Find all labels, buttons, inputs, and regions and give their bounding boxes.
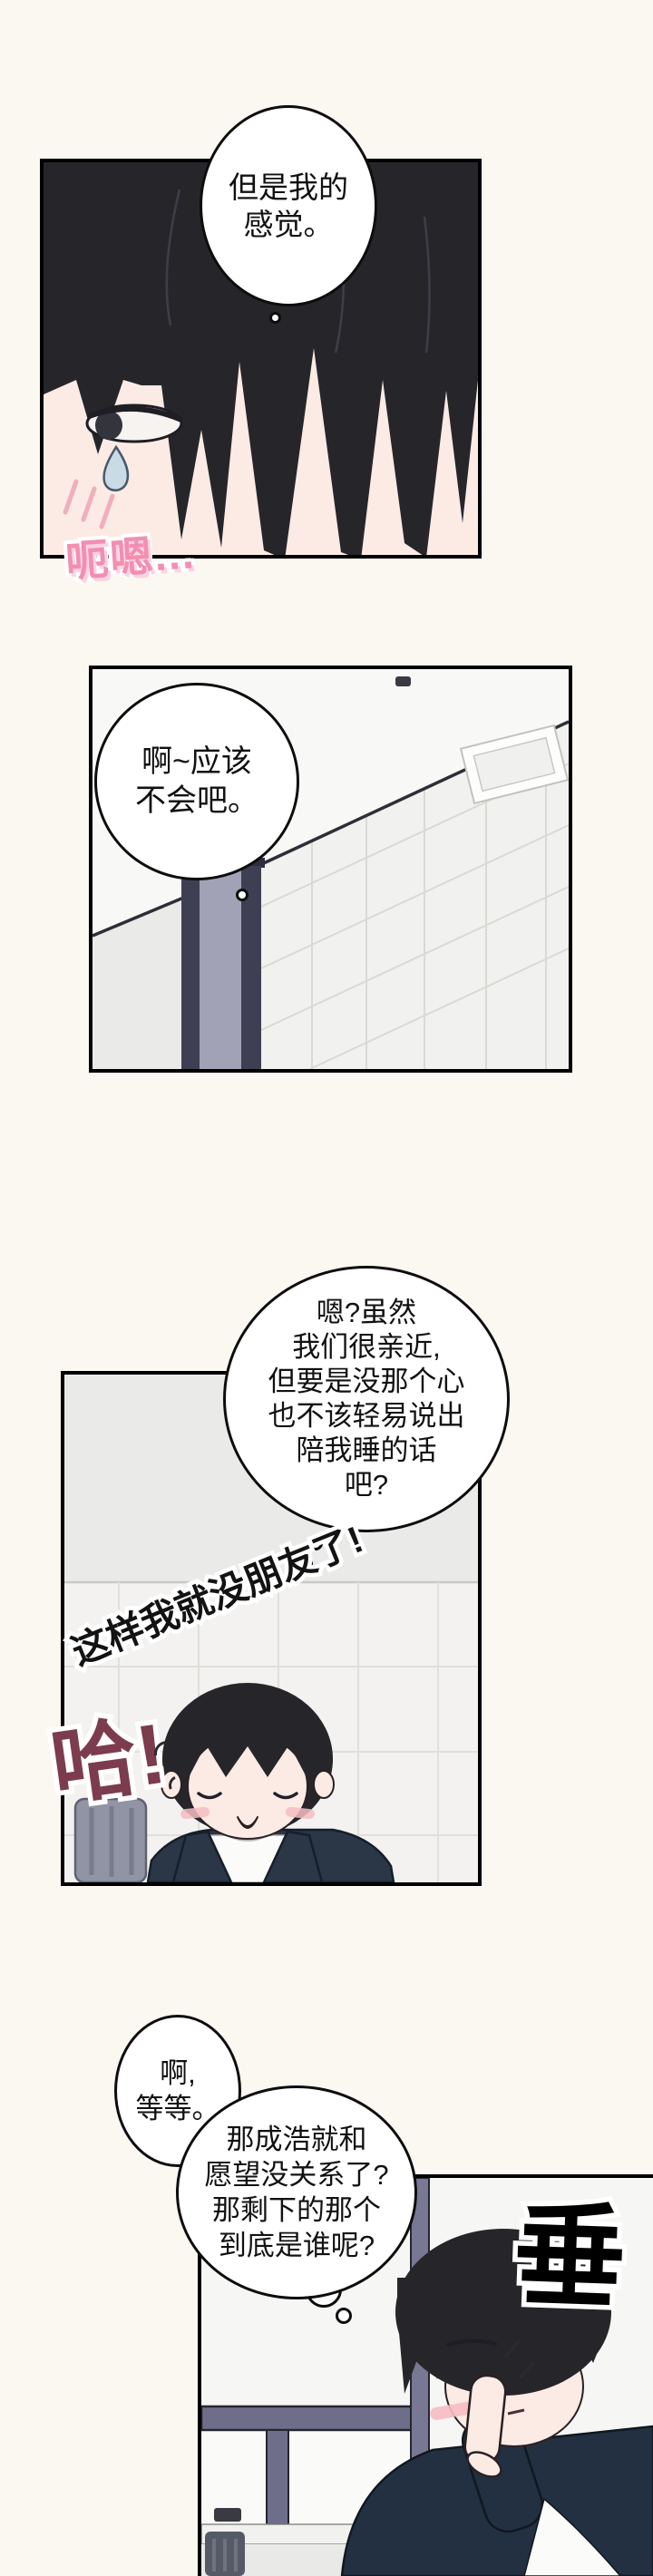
- window-frame-divider: [267, 2430, 288, 2524]
- bubble-1-line: 但是我的: [229, 169, 348, 206]
- sfx-murmur-text: 呃嗯... 呃嗯...: [63, 518, 198, 589]
- bubble-2-line: 不会吧。: [135, 782, 258, 821]
- bubble-1-tail-dot: [269, 312, 281, 324]
- bubble-2-tail-dot: [236, 889, 249, 901]
- bubble-5-trail-dot: [336, 2308, 352, 2324]
- ear-right: [314, 1771, 334, 1798]
- sfx-big-character: 垂 垂: [512, 2200, 628, 2316]
- bubble-3-line: 嗯?虽然: [317, 1296, 416, 1330]
- door-frame: [178, 858, 265, 1069]
- thought-bubble-3: 嗯?虽然 我们很亲近, 但要是没那个心 也不该轻易说出 陪我睡的话 吧?: [223, 1266, 510, 1532]
- face: [188, 1734, 307, 1839]
- ceiling-sensor: [395, 676, 411, 686]
- bubble-3-line: 也不该轻易说出: [268, 1399, 465, 1434]
- bubble-5-line: 到底是谁呢?: [219, 2228, 375, 2263]
- bubble-5-line: 愿望没关系了?: [204, 2157, 388, 2192]
- eye: [87, 405, 181, 442]
- bubble-3-line: 但要是没那个心: [268, 1365, 465, 1399]
- character-head: [161, 1683, 334, 1839]
- window-lock: [214, 2508, 241, 2522]
- speech-bubble-1: 但是我的 感觉。: [200, 105, 377, 306]
- thought-bubble-5: 那成浩就和 愿望没关系了? 那剩下的那个 到底是谁呢?: [176, 2085, 417, 2299]
- bubble-5-line: 那剩下的那个: [212, 2192, 381, 2228]
- bubble-4-line: 啊,: [160, 2056, 196, 2091]
- bubble-3-line: 我们很亲近,: [292, 1330, 441, 1365]
- sfx-murmur-fill: 呃嗯...: [63, 518, 198, 589]
- bubble-2-line: 啊~应该: [141, 743, 252, 782]
- bubble-5-line: 那成浩就和: [227, 2122, 367, 2157]
- bubble-1-line: 感觉。: [244, 206, 334, 243]
- window-frame-bar: [201, 2406, 428, 2430]
- chair: [205, 2532, 245, 2576]
- bubble-3-line: 吧?: [345, 1468, 388, 1502]
- sfx-big-character-fill: 垂: [512, 2200, 628, 2316]
- bubble-3-line: 陪我睡的话: [297, 1434, 437, 1468]
- comic-page: 但是我的 感觉。 啊~应该 不会吧。 嗯?虽然 我们很亲近, 但要是没那个心 也…: [0, 0, 653, 2576]
- speech-bubble-2: 啊~应该 不会吧。: [94, 683, 299, 880]
